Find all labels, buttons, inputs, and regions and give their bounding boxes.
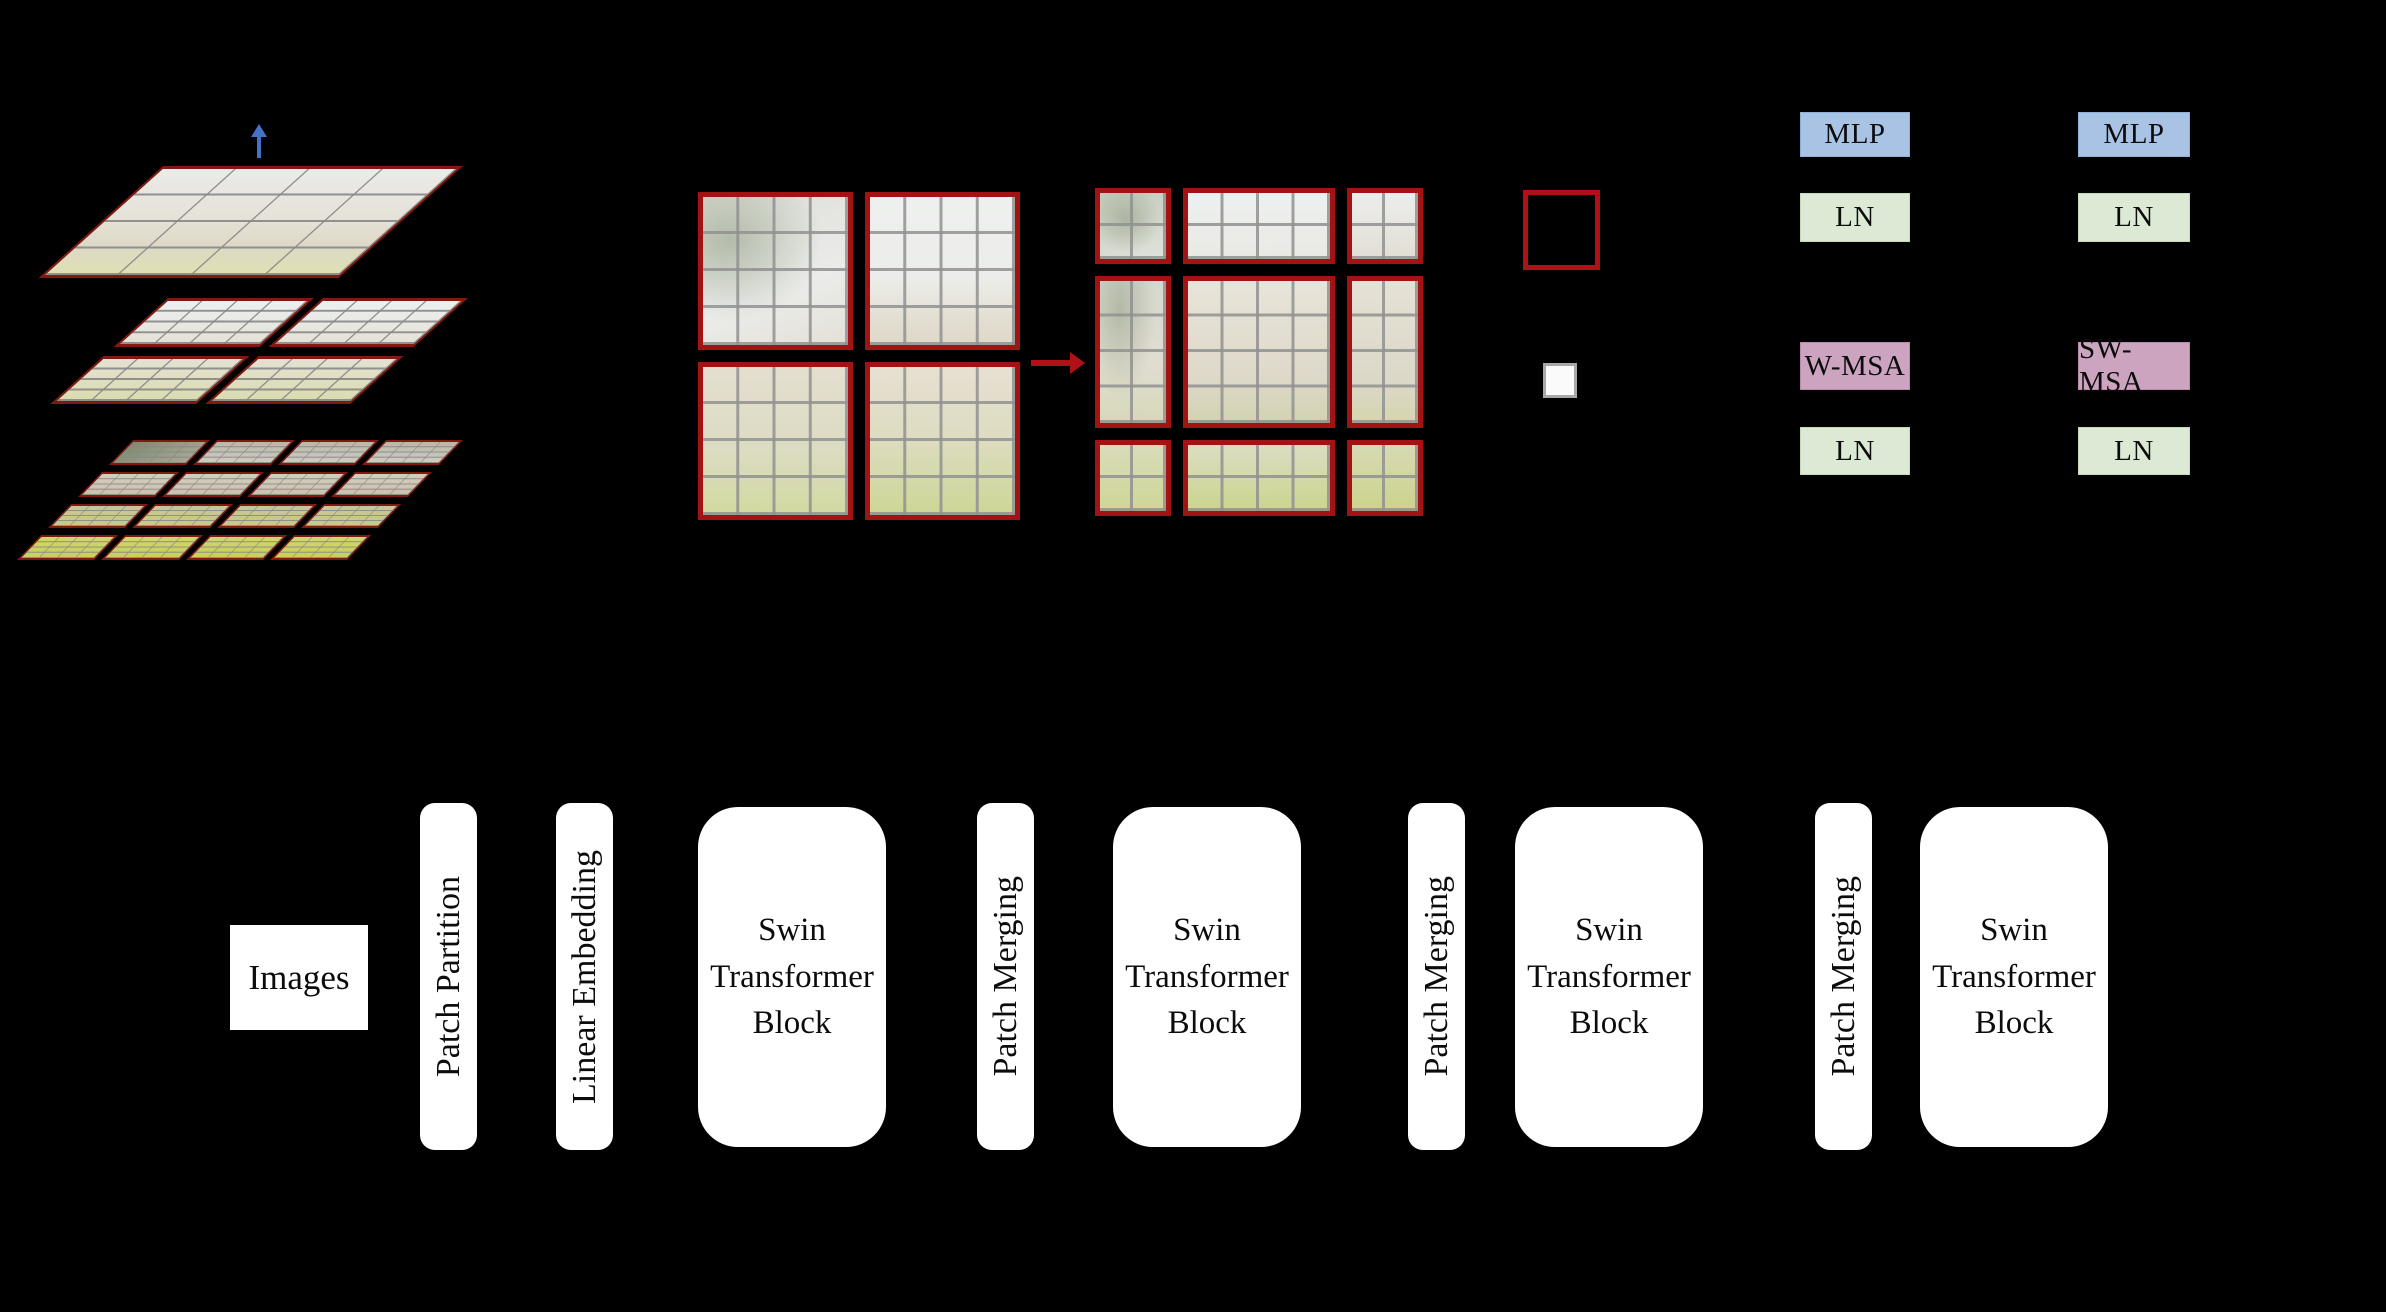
patch-grid-lines (1100, 445, 1166, 511)
patch-grid-lines (870, 197, 1015, 345)
patch-grid-lines (335, 474, 428, 495)
feature-map-layer-bottom (17, 440, 463, 560)
patch-grid-lines (105, 537, 198, 558)
local-window (698, 362, 853, 520)
patch-grid-lines (113, 442, 206, 463)
local-window (1183, 440, 1335, 516)
w-msa-box: W-MSA (1800, 342, 1910, 390)
stage-swin-block-3: Swin Transformer Block (1515, 807, 1703, 1147)
patch-grid-lines (1352, 193, 1418, 259)
feature-plane (301, 504, 402, 529)
patch-grid-lines (1188, 193, 1330, 259)
patch-grid-lines (220, 506, 313, 527)
layernorm-box: LN (1800, 193, 1910, 242)
stage-label: Patch Merging (1825, 876, 1863, 1077)
patch-grid-lines (282, 442, 375, 463)
local-window (1095, 440, 1171, 516)
local-window (865, 192, 1020, 350)
patch-grid-lines (703, 197, 848, 345)
right-arrow-head (1070, 352, 1085, 374)
patch-grid-lines (1188, 281, 1330, 423)
patch-grid-lines (251, 474, 344, 495)
up-arrow-icon (250, 124, 268, 160)
stage-swin-block-4: Swin Transformer Block (1920, 807, 2108, 1147)
feature-plane (270, 535, 371, 560)
images-input-box: Images (230, 925, 368, 1030)
local-window (865, 362, 1020, 520)
stage-swin-block-1: Swin Transformer Block (698, 807, 886, 1147)
feature-plane (362, 440, 463, 465)
local-window (1183, 188, 1335, 264)
right-arrow-icon (1031, 352, 1085, 374)
patch-grid-lines (1100, 281, 1166, 423)
window-legend-marker (1523, 190, 1600, 270)
right-arrow-stem (1031, 360, 1072, 366)
patch-grid-lines (1352, 281, 1418, 423)
patch-grid-lines (21, 537, 114, 558)
patch-grid-lines (1352, 445, 1418, 511)
local-window (1347, 188, 1423, 264)
shifted-window-partition-grid (1095, 188, 1423, 516)
stage-patch-partition: Patch Partition (420, 803, 477, 1150)
patch-grid-lines (136, 506, 229, 527)
feature-plane (331, 472, 432, 497)
local-window (1183, 276, 1335, 428)
local-window (1095, 276, 1171, 428)
stage-label: Linear Embedding (566, 850, 604, 1104)
stage-patch-merging-3: Patch Merging (1815, 803, 1872, 1150)
local-window (1347, 276, 1423, 428)
sw-msa-box: SW-MSA (2078, 342, 2190, 390)
patch-grid-lines (190, 537, 283, 558)
patch-grid-lines (167, 474, 260, 495)
patch-grid-lines (304, 506, 397, 527)
patch-grid-lines (870, 367, 1015, 515)
window-partition-grid (698, 192, 1020, 520)
patch-grid-lines (82, 474, 175, 495)
stage-label: Patch Merging (987, 876, 1025, 1077)
feature-map-layer-middle (50, 298, 468, 404)
layernorm-box: LN (1800, 427, 1910, 475)
local-window (1347, 440, 1423, 516)
stage-label: Patch Partition (430, 876, 468, 1077)
layernorm-box: LN (2078, 427, 2190, 475)
local-window (698, 192, 853, 350)
patch-grid-lines (366, 442, 459, 463)
patch-legend-marker (1543, 363, 1577, 398)
mlp-box: MLP (1800, 112, 1910, 157)
feature-map-layer-top (39, 166, 463, 278)
stage-swin-block-2: Swin Transformer Block (1113, 807, 1301, 1147)
stage-patch-merging-2: Patch Merging (1408, 803, 1465, 1150)
patch-grid-lines (703, 367, 848, 515)
stage-label: Patch Merging (1418, 876, 1456, 1077)
patch-grid-lines (274, 537, 367, 558)
patch-grid-lines (197, 442, 290, 463)
patch-grid-lines (52, 506, 145, 527)
local-window (1095, 188, 1171, 264)
stage-linear-embedding: Linear Embedding (556, 803, 613, 1150)
layernorm-box: LN (2078, 193, 2190, 242)
patch-grid-lines (45, 169, 457, 275)
stage-patch-merging-1: Patch Merging (977, 803, 1034, 1150)
mlp-box: MLP (2078, 112, 2190, 157)
up-arrow-stem (257, 135, 261, 158)
figure-canvas: MLP LN W-MSA LN MLP LN SW-MSA LN Images … (0, 0, 2386, 1312)
patch-grid-lines (1188, 445, 1330, 511)
patch-grid-lines (1100, 193, 1166, 259)
